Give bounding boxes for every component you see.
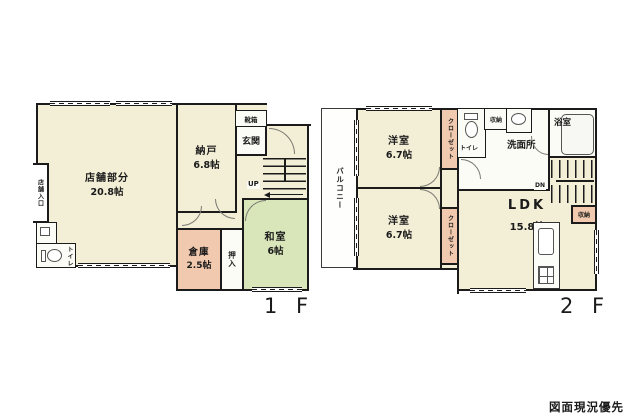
shop-entrance-label: 店舗入口 bbox=[36, 179, 45, 207]
room-oshiire: 押入 bbox=[220, 228, 244, 291]
genkan-label: 玄関 bbox=[242, 134, 260, 147]
sink-icon bbox=[40, 227, 50, 236]
yoshitsu-bottom-name: 洋室 bbox=[388, 214, 410, 229]
window bbox=[354, 120, 359, 176]
window bbox=[354, 198, 359, 256]
yoshitsu-top-name: 洋室 bbox=[388, 134, 410, 149]
room-nando: 納戸 6.8帖 bbox=[176, 103, 237, 213]
souko-name: 倉庫 bbox=[188, 246, 209, 260]
window bbox=[116, 101, 172, 106]
room-toilet-1f: トイレ bbox=[36, 243, 76, 268]
window bbox=[50, 101, 110, 106]
window bbox=[470, 288, 526, 293]
washbasin-icon bbox=[511, 113, 526, 125]
shop-name: 店舗部分 bbox=[85, 171, 129, 186]
stairs-down bbox=[551, 160, 594, 178]
toilet-icon bbox=[465, 121, 478, 138]
floorplan-canvas: 店舗部分 20.8帖 店舗入口 トイレ 納戸 6.8帖 靴箱 玄関 bbox=[0, 0, 628, 420]
storage-right: 収納 bbox=[571, 205, 597, 224]
bathroom-label: 浴室 bbox=[554, 116, 571, 128]
kitchen-sink-icon bbox=[538, 228, 554, 255]
stairs-up-label: UP bbox=[247, 181, 260, 189]
storage-top-label: 収納 bbox=[490, 115, 502, 124]
window bbox=[78, 263, 170, 268]
stairs-up-divider bbox=[284, 158, 286, 182]
disclaimer-text: 図面現況優先 bbox=[549, 399, 624, 415]
room-souko: 倉庫 2.5帖 bbox=[176, 228, 222, 291]
toilet-2f-label: トイレ bbox=[460, 143, 478, 152]
toilet-1f-label: トイレ bbox=[65, 246, 74, 267]
kitchen-counter bbox=[533, 222, 560, 289]
oshiire-label: 押入 bbox=[227, 251, 238, 268]
window bbox=[252, 287, 302, 292]
nando-size: 6.8帖 bbox=[193, 159, 219, 172]
window bbox=[366, 106, 432, 111]
yoshitsu-top-size: 6.7帖 bbox=[386, 149, 412, 162]
floor2-step-cut bbox=[353, 268, 459, 294]
storage-right-label: 収納 bbox=[578, 210, 590, 219]
floor2-label: 2 F bbox=[560, 294, 610, 318]
washitsu-size: 6帖 bbox=[267, 245, 283, 258]
shoebox: 靴箱 bbox=[235, 110, 267, 127]
nando-name: 納戸 bbox=[196, 144, 218, 159]
ldk-name: LDK bbox=[495, 198, 559, 213]
closet-bottom-label: クローゼット bbox=[446, 215, 455, 257]
shop-entrance-recess: 店舗入口 bbox=[33, 163, 49, 223]
shop-size: 20.8帖 bbox=[91, 186, 124, 199]
stairs-up-arrow-line bbox=[270, 194, 303, 195]
toilet-icon bbox=[47, 249, 62, 262]
stairs-down-divider bbox=[556, 180, 594, 182]
window bbox=[594, 230, 599, 274]
room-genkan: 玄関 bbox=[235, 125, 267, 156]
room-bathroom: 浴室 bbox=[548, 108, 597, 158]
washbasin bbox=[506, 108, 532, 133]
shoebox-label: 靴箱 bbox=[245, 114, 258, 124]
stove-icon bbox=[538, 266, 554, 284]
stairs-down-label: DN bbox=[534, 183, 546, 190]
floor1-label: 1 F bbox=[264, 294, 314, 318]
souko-size: 2.5帖 bbox=[187, 260, 212, 273]
closet-top-label: クローゼット bbox=[446, 118, 455, 160]
balcony-label: バルコニー bbox=[335, 167, 346, 210]
floor1-porch-cut bbox=[267, 100, 311, 126]
yoshitsu-bottom-size: 6.7帖 bbox=[386, 229, 412, 242]
utility-sink-box bbox=[36, 222, 57, 245]
stairs-down-lower bbox=[551, 185, 594, 203]
toilet-tank-icon bbox=[464, 113, 478, 120]
stairs-up-arrow-head bbox=[264, 192, 270, 198]
washitsu-name: 和室 bbox=[265, 230, 287, 245]
room-toilet-2f: トイレ bbox=[457, 108, 486, 158]
toilet-tank-icon bbox=[41, 250, 46, 262]
storage-top: 収納 bbox=[484, 108, 508, 130]
